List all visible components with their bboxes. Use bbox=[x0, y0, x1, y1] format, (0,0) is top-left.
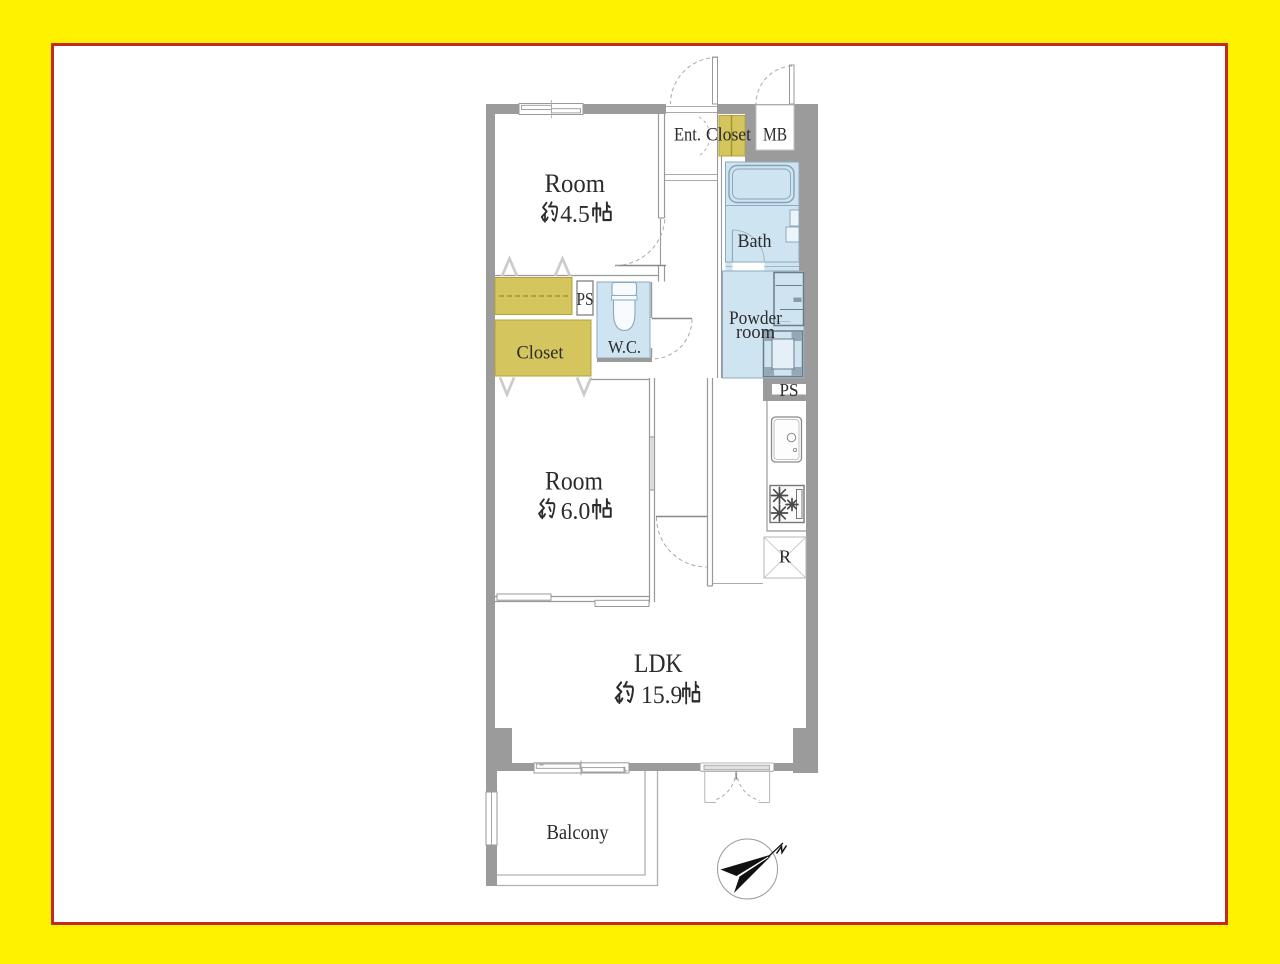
svg-text:4.5: 4.5 bbox=[560, 202, 590, 228]
svg-text:LDK: LDK bbox=[634, 649, 683, 678]
svg-text:Room: Room bbox=[545, 467, 603, 496]
svg-text:Closet: Closet bbox=[517, 343, 565, 364]
svg-text:Balcony: Balcony bbox=[547, 820, 609, 844]
svg-text:room: room bbox=[736, 322, 775, 343]
svg-text:W.C.: W.C. bbox=[608, 337, 641, 357]
svg-text:Bath: Bath bbox=[738, 231, 772, 252]
svg-text:15.9: 15.9 bbox=[641, 682, 682, 709]
svg-text:Closet: Closet bbox=[706, 126, 752, 146]
svg-text:PS: PS bbox=[780, 380, 799, 400]
svg-text:Ent.: Ent. bbox=[674, 126, 701, 146]
svg-text:MB: MB bbox=[763, 126, 787, 146]
svg-text:R: R bbox=[779, 547, 791, 567]
svg-text:Room: Room bbox=[545, 169, 606, 198]
svg-text:6.0: 6.0 bbox=[561, 499, 591, 525]
svg-text:PS: PS bbox=[577, 289, 594, 309]
